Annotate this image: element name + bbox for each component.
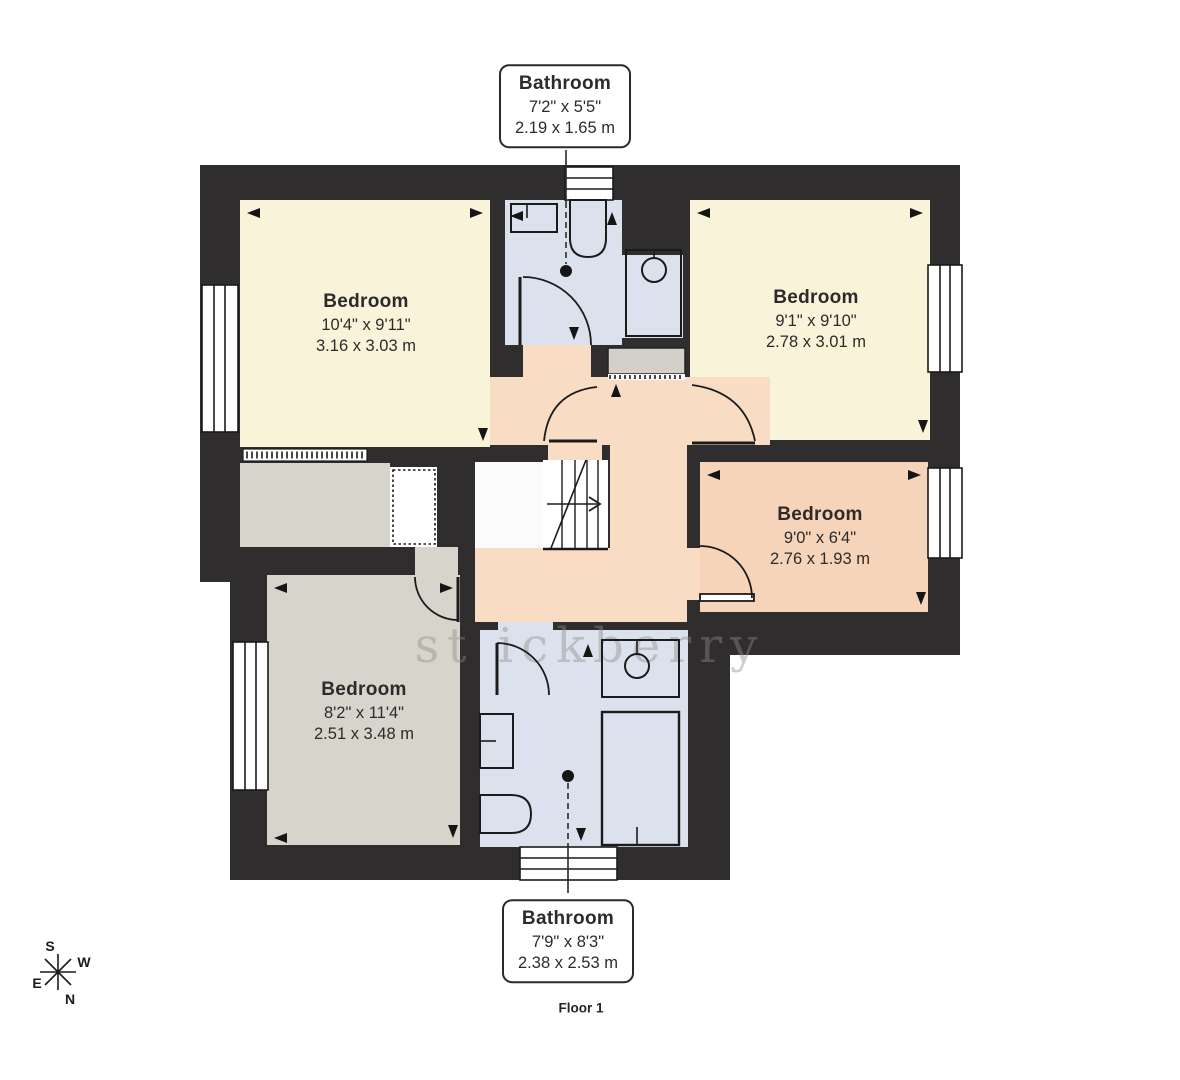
callout-dim-metric: 2.19 x 1.65 m [515,118,615,139]
threshold-bedroom-bottom-left [415,547,458,577]
leader-dot-bathroom-bottom [562,770,574,782]
floorplan-page: st ickberry [0,0,1180,1080]
room-floors [240,200,930,847]
floor-landing-channel [610,445,687,548]
compass-n: N [65,991,75,1007]
floor-landing-lower [475,548,687,622]
callout-dim-metric: 2.38 x 2.53 m [518,953,618,974]
callout-room-name: Bathroom [515,72,615,97]
floor-bedroom-mid-right [700,462,928,612]
window-bedroom-top-left [202,285,238,432]
cupboard-landing [608,348,685,380]
floor-stair-landing-strip [475,462,543,548]
compass: S W E N [32,938,91,1007]
floor-hallway [240,463,390,547]
threshold-bathroom-top [523,345,591,378]
threshold-stairs-door [548,445,602,462]
hatched-partition-top-left [243,449,367,461]
watermark-text: st ickberry [415,618,766,674]
leader-dot-bathroom-top [560,265,572,277]
window-bedroom-top-right [928,265,962,372]
floor-bedroom-top-left [240,200,490,447]
callout-dim-imperial: 7'2" x 5'5" [515,97,615,118]
wardrobe-dotted-outline [393,470,435,544]
floor-caption: Floor 1 [558,1001,603,1016]
threshold-bedroom-mid-right [687,548,700,600]
compass-w: W [77,954,91,970]
callout-dim-imperial: 7'9" x 8'3" [518,932,618,953]
callout-room-name: Bathroom [518,907,618,932]
window-bedroom-bottom-left [233,642,268,790]
window-bedroom-mid-right [928,468,962,558]
compass-s: S [45,938,54,954]
window-bathroom-top [565,167,613,200]
compass-star [40,954,76,990]
callout-bathroom-top: Bathroom 7'2" x 5'5" 2.19 x 1.65 m [499,64,631,148]
floor-bedroom-bottom-left [267,575,460,845]
compass-e: E [32,975,41,991]
callout-bathroom-bottom: Bathroom 7'9" x 8'3" 2.38 x 2.53 m [502,899,634,983]
floor-landing-lobby [490,377,770,445]
